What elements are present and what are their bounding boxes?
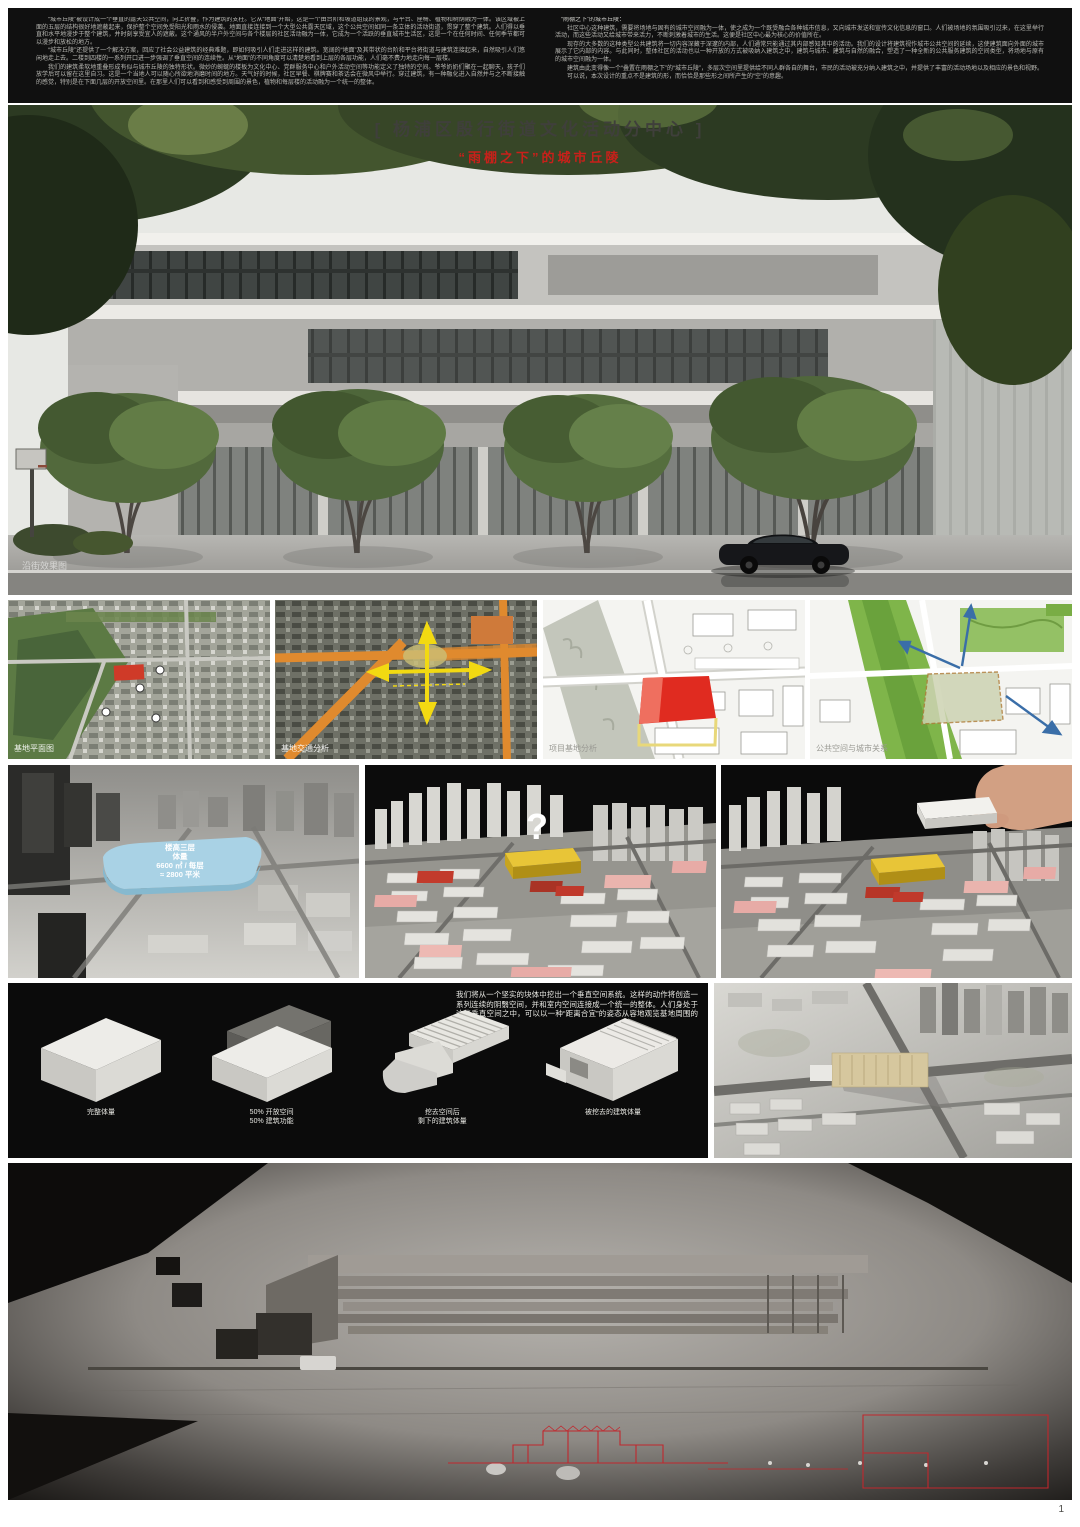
poster-page: “城市丘陵”被设计成一个垂直的露天公共空间，向上折叠，作为建筑的支柱。它从“地面… [0, 0, 1080, 1527]
site-map-figure-ground: 项目基地分析 [543, 600, 805, 759]
ground-line [88, 1367, 988, 1370]
model-van [300, 1356, 336, 1370]
page-number: 1 [1058, 1504, 1064, 1515]
paragraph: “城市丘陵”被设计成一个垂直的露天公共空间，向上折叠，作为建筑的支柱。它从“地面… [36, 17, 525, 47]
site-map-aerial: 基地平面图 [8, 600, 270, 759]
orange-block [471, 616, 513, 644]
site-map-open-space: 公共空间与城市关系 [810, 600, 1072, 759]
paragraph: 可以说，本次设计的重点不是建筑的形，而恰恰是那些形之间所产生的“空”的意趣。 [555, 74, 1044, 82]
paragraph-lead: “雨棚之下”的城市丘陵： [555, 17, 1044, 25]
step-caption: 50% 开放空间 50% 建筑功能 [193, 1108, 351, 1126]
night-model-photo [8, 1163, 1072, 1500]
svg-text:6600 ㎡ / 每层: 6600 ㎡ / 每层 [156, 860, 204, 870]
massing-model-hand [721, 765, 1072, 978]
massing-step-4: 被挖去的建筑体量 [534, 1001, 692, 1126]
svg-text:楼高三层: 楼高三层 [165, 842, 195, 852]
step-caption: 被挖去的建筑体量 [534, 1108, 692, 1117]
svg-text:体量: 体量 [173, 851, 188, 861]
hero-render-illustration: 沿街效果图 [8, 105, 1072, 595]
site-analysis-row: 基地平面图 [8, 600, 1072, 759]
paragraph: “城市丘陵”还提供了一个解决方案，回应了社会公益建筑的经典难题，即如何吸引人们走… [36, 48, 525, 63]
paragraph: 建筑由此变得像一个“叠置在雨棚之下”的“城市丘陵”，多层次空间里提供给不同人群各… [555, 66, 1044, 74]
massing-step-1: 完整体量 [22, 1001, 180, 1126]
street [8, 573, 1072, 595]
right-text-column: “雨棚之下”的城市丘陵： 社区中心这种建筑，需要将场地与固有的城市空间融为一体，… [555, 17, 1044, 94]
site-model-top-view [714, 983, 1072, 1158]
paragraph: 现存的大多数的这种类型公共建筑将一切内容深藏于深邃的内部，人们通常只能通过其内部… [555, 42, 1044, 65]
curb-line [8, 570, 1072, 573]
massing-model-question: ? [365, 765, 716, 978]
left-text-column: “城市丘陵”被设计成一个垂直的露天公共空间，向上折叠，作为建筑的支柱。它从“地面… [36, 17, 525, 94]
step-caption: 完整体量 [22, 1108, 180, 1117]
site-building-red [114, 664, 145, 681]
hero-render: 沿街效果图 [8, 105, 1072, 595]
massing-steps: 完整体量 50% 开放空间 50% 建筑功能 [22, 1001, 692, 1126]
massing-diagram-panel: 我们将从一个坚实的块体中挖出一个垂直空间系统。这样的动作将创造一系列连续的阴翳空… [8, 983, 708, 1158]
tall-building-cluster [920, 983, 1068, 1035]
massing-step-3: 挖去空间后 剩下的建筑体量 [363, 1001, 521, 1126]
massing-model-row: 楼高三层 体量 6600 ㎡ / 每层 ≈ 2800 平米 [8, 765, 1072, 978]
map-caption: 基地平面图 [14, 743, 54, 753]
site-outline-tan [922, 672, 1003, 724]
massing-model-volume: 楼高三层 体量 6600 ㎡ / 每层 ≈ 2800 平米 [8, 765, 359, 978]
site-map-traffic: 基地交通分析 [275, 600, 537, 759]
map-caption: 基地交通分析 [281, 743, 329, 753]
header-text-panel: “城市丘陵”被设计成一个垂直的露天公共空间，向上折叠，作为建筑的支柱。它从“地面… [8, 8, 1072, 103]
svg-text:≈ 2800 平米: ≈ 2800 平米 [160, 869, 200, 879]
map-caption: 项目基地分析 [549, 743, 597, 753]
concept-diagram-row: 我们将从一个坚实的块体中挖出一个垂直空间系统。这样的动作将创造一系列连续的阴翳空… [8, 983, 1072, 1158]
step-caption: 挖去空间后 剩下的建筑体量 [363, 1108, 521, 1126]
massing-step-2: 50% 开放空间 50% 建筑功能 [193, 1001, 351, 1126]
paragraph: 我们的建筑柔软地重叠形成有似与城市丘陵的独特形状。微妙的蜿蜒的楼板为文化中心、党… [36, 65, 525, 88]
question-mark: ? [526, 806, 548, 847]
paragraph: 社区中心这种建筑，需要将场地与固有的城市空间融为一体，使之成为一个既受融合各种城… [555, 26, 1044, 41]
render-watermark: 沿街效果图 [22, 560, 67, 571]
map-caption: 公共空间与城市关系 [816, 743, 888, 753]
